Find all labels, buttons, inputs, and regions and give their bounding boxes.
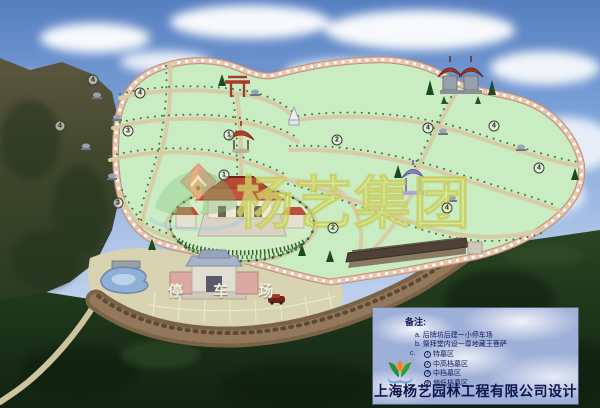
parking-lot-label: 停 车 场 bbox=[168, 280, 286, 301]
zone-label: 中高档墓区 bbox=[433, 360, 468, 370]
watermark-text: 杨艺集团 bbox=[236, 158, 496, 240]
legend-title: 备注: bbox=[405, 315, 426, 328]
legend-note-b: b. 祭拜堂内设一尊地藏王菩萨 bbox=[415, 339, 507, 349]
zone-number-icon: 2 bbox=[424, 361, 431, 368]
legend-zone-1: 1特墓区 bbox=[424, 350, 468, 360]
zone-label: 特墓区 bbox=[433, 350, 454, 360]
zone-number-icon: 3 bbox=[424, 370, 431, 377]
company-name: 上海杨艺园林工程有限公司设计 bbox=[373, 381, 578, 401]
site-plan-image: 杨艺集团 停 车 场 4443124441243 备注: a. 后牌坊后建一小停… bbox=[0, 0, 600, 408]
legend-zone-3: 3中档墓区 bbox=[424, 369, 468, 379]
legend-zone-2: 2中高档墓区 bbox=[424, 360, 468, 370]
legend-panel: 备注: a. 后牌坊后建一小停车场 b. 祭拜堂内设一尊地藏王菩萨 c. 1特墓… bbox=[373, 308, 578, 404]
zone-number-icon: 1 bbox=[424, 351, 431, 358]
zone-label: 中档墓区 bbox=[433, 369, 461, 379]
